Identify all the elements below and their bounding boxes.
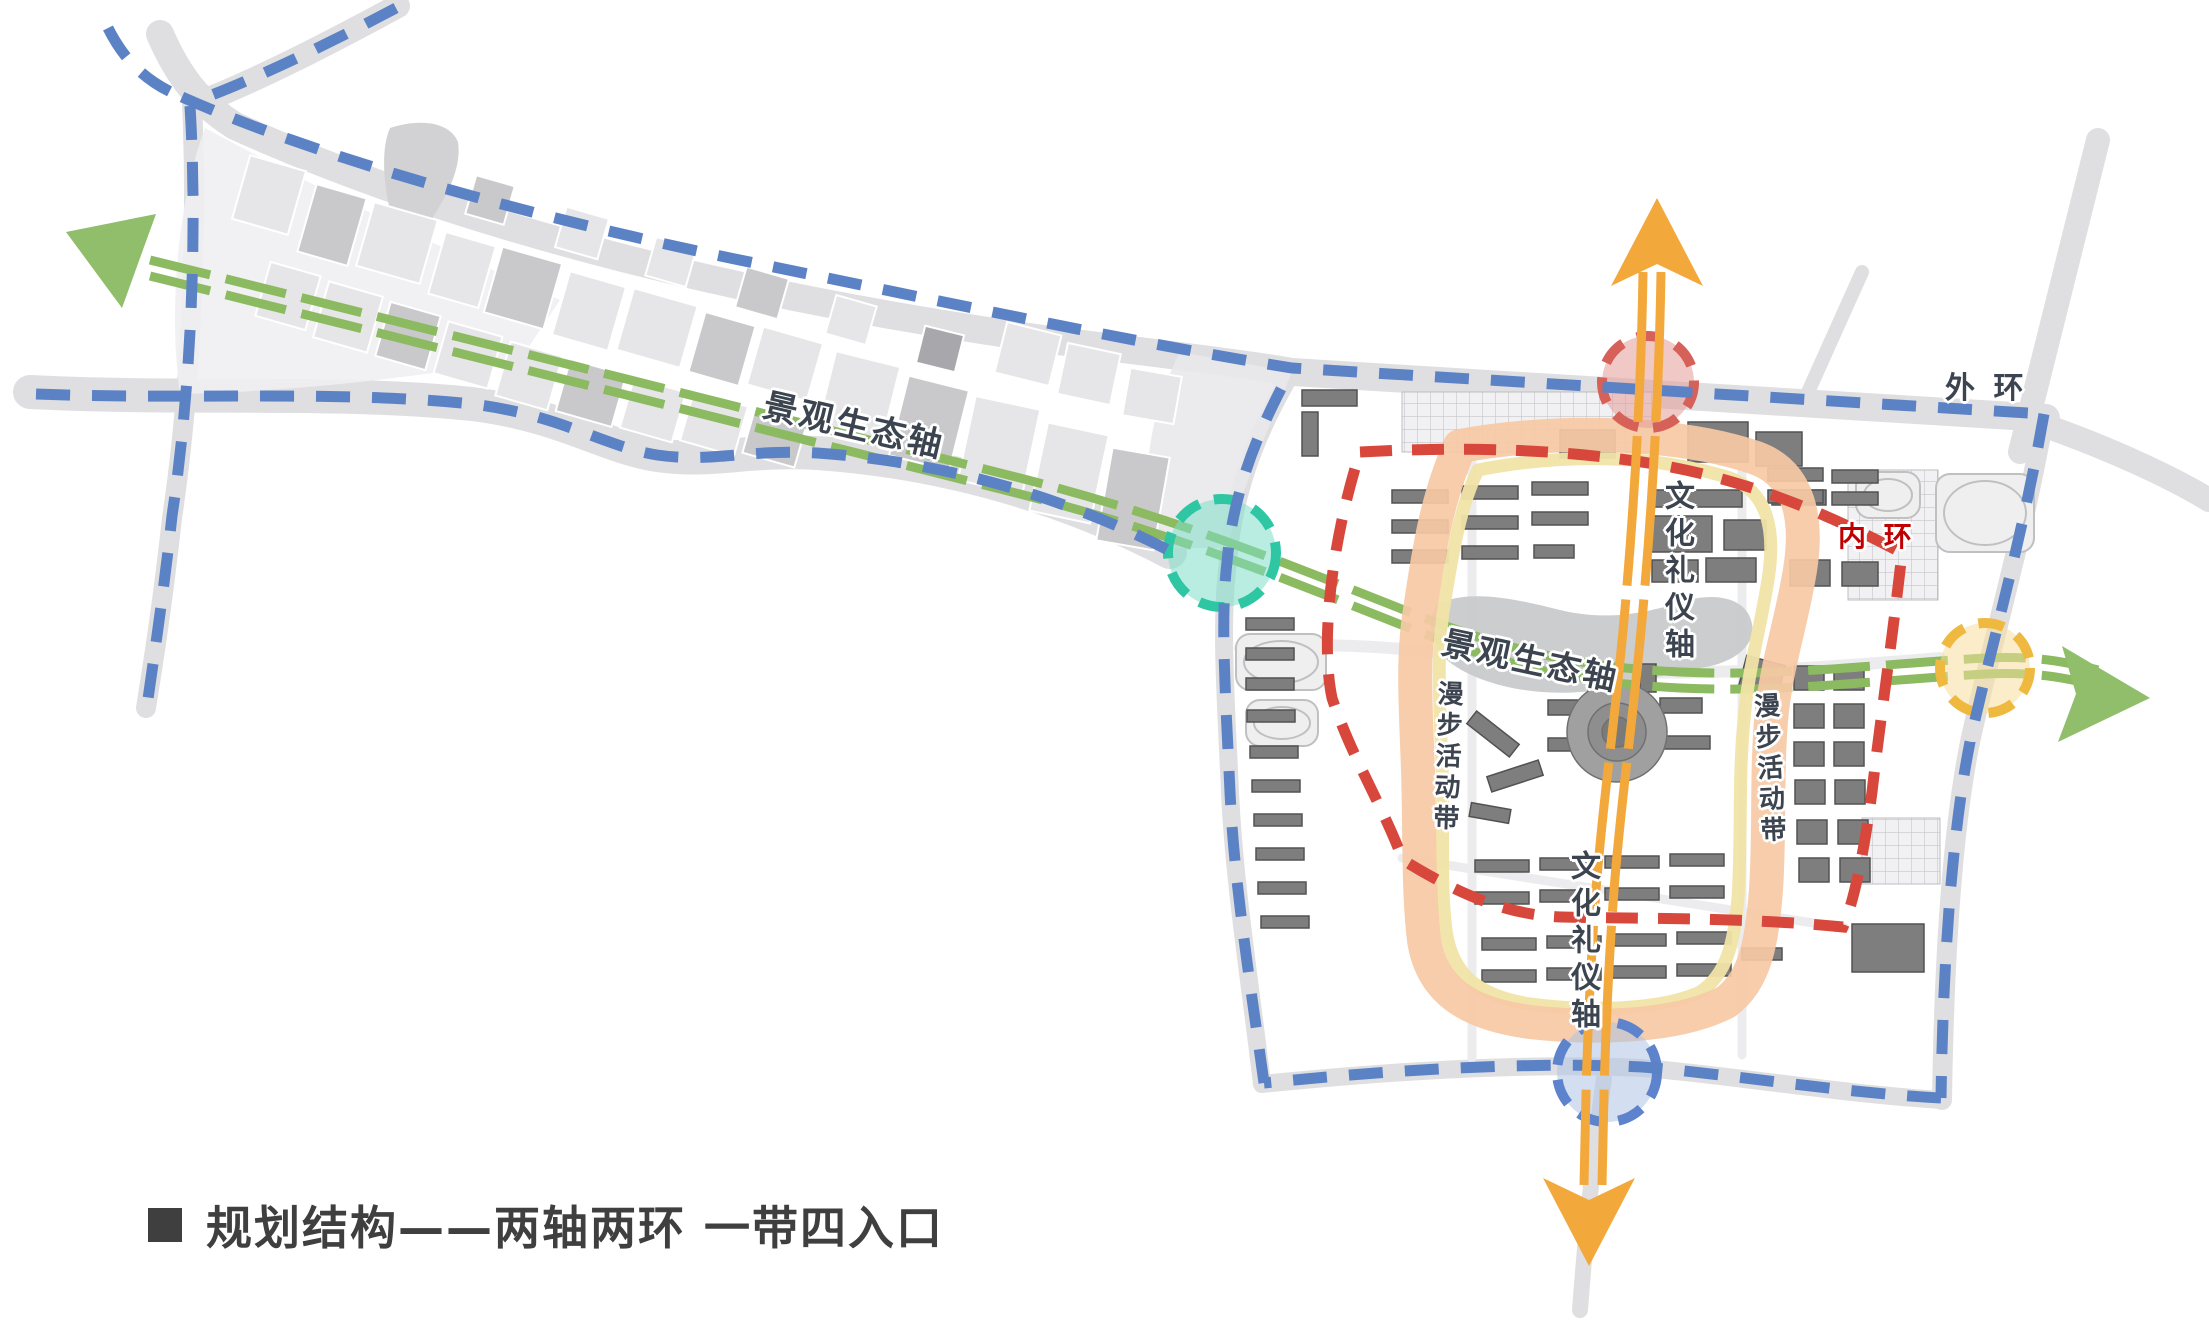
culture-axis-label-top: 文化礼仪轴	[1654, 480, 1698, 665]
building	[1246, 648, 1294, 660]
building	[1834, 742, 1864, 766]
parcel-block	[916, 326, 964, 373]
building	[1612, 934, 1666, 946]
building	[1795, 780, 1825, 804]
building	[1254, 814, 1302, 826]
outer-ring-label: 外 环	[1945, 363, 2027, 407]
building	[1532, 512, 1588, 525]
parcel-grid	[1862, 818, 1940, 884]
culture-axis-label-bottom: 文化礼仪轴	[1560, 850, 1604, 1035]
title-text: 规划结构——两轴两环 一带四入口	[206, 1192, 944, 1258]
parcel-block	[616, 288, 697, 368]
parcel-block	[688, 312, 755, 386]
page-title: 规划结构——两轴两环 一带四入口	[148, 1192, 944, 1258]
building	[1462, 516, 1518, 529]
building	[1852, 924, 1924, 972]
parcel-block	[552, 271, 626, 350]
building	[1797, 820, 1827, 844]
building	[1794, 742, 1824, 766]
building	[1250, 746, 1298, 758]
building	[1252, 780, 1300, 792]
building	[1475, 860, 1529, 872]
building	[1246, 678, 1294, 690]
building	[1706, 558, 1756, 582]
building	[1670, 854, 1724, 866]
building	[1832, 470, 1878, 483]
inner-ring-label: 内 环	[1838, 515, 1916, 555]
map-canvas	[0, 0, 2209, 1339]
building	[1794, 704, 1824, 728]
building	[1247, 710, 1295, 722]
building	[1487, 760, 1543, 792]
building	[1664, 736, 1710, 749]
planning-diagram: 外 环 内 环 景观生态轴 景观生态轴 文化礼仪轴 文化礼仪轴 漫步活动带 漫步…	[0, 0, 2209, 1339]
building	[1302, 390, 1357, 406]
building	[1834, 704, 1864, 728]
building	[1246, 618, 1294, 630]
parcel-block	[1122, 368, 1182, 424]
parcel-block	[1057, 343, 1121, 405]
stroll-belt-label-left: 漫步活动带	[1425, 679, 1467, 835]
building	[1724, 520, 1766, 550]
building	[1835, 780, 1865, 804]
road	[1800, 272, 1862, 410]
building	[1482, 938, 1536, 950]
building	[1799, 858, 1829, 882]
building	[1612, 966, 1666, 978]
building	[1677, 932, 1731, 944]
road	[2020, 140, 2098, 452]
eco-axis-arrow	[66, 214, 156, 308]
building	[1462, 546, 1518, 559]
building	[1842, 562, 1878, 586]
building	[1302, 412, 1318, 456]
building	[1534, 545, 1574, 558]
building	[1670, 886, 1724, 898]
building	[1261, 916, 1309, 928]
eco-axis-arrow	[2058, 646, 2150, 742]
building	[1660, 698, 1702, 713]
building	[1832, 492, 1878, 505]
building	[1256, 848, 1304, 860]
building	[1482, 970, 1536, 982]
building	[1258, 882, 1306, 894]
building	[1532, 482, 1588, 495]
title-bullet-square	[148, 1208, 182, 1242]
road	[2040, 424, 2209, 500]
